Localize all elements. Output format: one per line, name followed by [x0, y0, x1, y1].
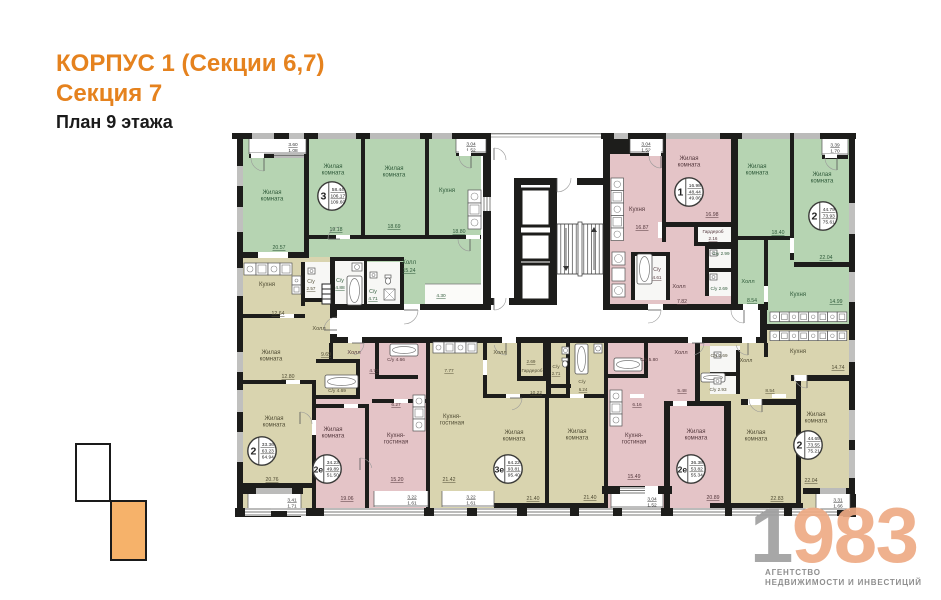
- svg-text:16.98: 16.98: [689, 183, 701, 189]
- svg-text:4.30: 4.30: [436, 293, 446, 299]
- svg-text:75.61: 75.61: [823, 220, 835, 226]
- svg-text:64.94: 64.94: [262, 455, 274, 461]
- svg-text:Кухня: Кухня: [439, 188, 455, 194]
- svg-text:49.89: 49.89: [327, 466, 339, 472]
- svg-text:48.44: 48.44: [689, 189, 701, 195]
- svg-text:С/у 2.69: С/у 2.69: [710, 286, 728, 291]
- svg-text:6.24: 6.24: [579, 387, 588, 392]
- svg-text:55.34: 55.34: [691, 473, 703, 479]
- svg-text:3.04: 3.04: [641, 142, 651, 148]
- svg-text:33.36: 33.36: [262, 442, 274, 448]
- svg-text:Холл: Холл: [347, 350, 360, 356]
- svg-text:22.04: 22.04: [805, 478, 818, 484]
- svg-text:3.41: 3.41: [287, 498, 297, 504]
- svg-text:3.04: 3.04: [466, 142, 476, 148]
- svg-text:С/у 2.69: С/у 2.69: [710, 353, 728, 358]
- svg-text:20.89: 20.89: [707, 495, 720, 501]
- svg-text:4.71: 4.71: [368, 296, 378, 302]
- svg-text:21.40: 21.40: [527, 496, 540, 502]
- svg-text:Жилаякомната: Жилаякомната: [746, 164, 769, 177]
- svg-text:18.69: 18.69: [388, 224, 401, 230]
- svg-text:2е: 2е: [314, 465, 324, 475]
- svg-text:1.61: 1.61: [466, 501, 476, 507]
- svg-text:2.16: 2.16: [709, 236, 718, 241]
- svg-text:18.40: 18.40: [772, 230, 785, 236]
- svg-text:Жилаякомната: Жилаякомната: [383, 166, 406, 179]
- svg-text:3.22: 3.22: [407, 495, 417, 501]
- svg-text:Холл: Холл: [741, 279, 754, 285]
- svg-text:Жилаякомната: Жилаякомната: [566, 429, 589, 442]
- svg-text:Жилаякомната: Жилаякомната: [322, 164, 345, 177]
- svg-text:Кухня: Кухня: [790, 292, 806, 298]
- svg-text:Холл: Холл: [674, 350, 687, 356]
- svg-text:2: 2: [811, 211, 817, 223]
- svg-text:4.61: 4.61: [653, 275, 662, 280]
- svg-text:93.81: 93.81: [508, 466, 520, 472]
- svg-text:15.49: 15.49: [628, 474, 641, 480]
- svg-text:Холл: Холл: [312, 326, 325, 332]
- svg-text:3.60: 3.60: [288, 142, 298, 148]
- svg-text:14.99: 14.99: [830, 299, 843, 305]
- svg-text:5.48: 5.48: [677, 388, 687, 394]
- svg-text:7.77: 7.77: [444, 368, 454, 374]
- svg-text:64.22: 64.22: [508, 460, 520, 466]
- svg-text:Жилаякомната: Жилаякомната: [678, 156, 701, 169]
- svg-text:1.52: 1.52: [647, 503, 657, 509]
- svg-text:19.06: 19.06: [341, 496, 354, 502]
- svg-text:Кухня-гостиная: Кухня-гостиная: [384, 433, 408, 446]
- svg-text:12.80: 12.80: [282, 374, 295, 380]
- svg-text:С/у: С/у: [336, 278, 344, 284]
- svg-text:106.17: 106.17: [330, 193, 345, 199]
- svg-text:Жилаякомната: Жилаякомната: [263, 416, 286, 429]
- svg-text:Холл: Холл: [672, 284, 685, 290]
- svg-text:10.22: 10.22: [530, 390, 542, 396]
- svg-text:3.04: 3.04: [647, 497, 657, 503]
- svg-text:73.55: 73.55: [808, 442, 820, 448]
- svg-text:63.23: 63.23: [262, 448, 274, 454]
- svg-text:18.80: 18.80: [453, 229, 466, 235]
- svg-text:58.44: 58.44: [332, 187, 344, 193]
- svg-text:2.69: 2.69: [527, 359, 536, 364]
- svg-text:21.40: 21.40: [584, 495, 597, 501]
- svg-text:Холл: Холл: [402, 260, 417, 266]
- svg-text:Жилаякомната: Жилаякомната: [260, 350, 283, 363]
- svg-text:1.70: 1.70: [830, 149, 840, 155]
- svg-text:20.76: 20.76: [266, 477, 279, 483]
- svg-text:12.64: 12.64: [272, 311, 285, 317]
- svg-text:Кухня: Кухня: [629, 207, 645, 213]
- svg-text:49.06: 49.06: [689, 196, 701, 202]
- svg-text:75.21: 75.21: [808, 449, 820, 455]
- svg-text:16.98: 16.98: [706, 212, 719, 218]
- svg-text:16.87: 16.87: [636, 225, 649, 231]
- svg-text:С/у 5.80: С/у 5.80: [640, 357, 658, 363]
- svg-text:Холл: Холл: [740, 358, 753, 364]
- svg-text:3.39: 3.39: [830, 143, 840, 149]
- svg-text:8.54: 8.54: [747, 298, 757, 304]
- svg-text:2е: 2е: [678, 465, 688, 475]
- svg-text:Кухня: Кухня: [790, 349, 806, 355]
- svg-text:Холл: Холл: [493, 350, 506, 356]
- svg-text:Гардероб: Гардероб: [521, 368, 542, 374]
- svg-text:36.38: 36.38: [691, 460, 703, 466]
- svg-text:51.50: 51.50: [327, 473, 339, 479]
- svg-text:С/у 4.66: С/у 4.66: [387, 357, 405, 363]
- svg-text:7.82: 7.82: [677, 299, 687, 305]
- svg-text:8.54: 8.54: [765, 388, 775, 394]
- svg-text:44.65: 44.65: [808, 436, 820, 442]
- svg-text:Жилаякомната: Жилаякомната: [503, 430, 526, 443]
- svg-text:Жилаякомната: Жилаякомната: [805, 412, 828, 425]
- svg-text:15.24: 15.24: [403, 268, 416, 274]
- svg-text:Жилаякомната: Жилаякомната: [322, 427, 345, 440]
- svg-text:Кухня: Кухня: [259, 282, 275, 288]
- svg-text:С/у 4.69: С/у 4.69: [328, 388, 346, 394]
- svg-text:Жилаякомната: Жилаякомната: [745, 430, 768, 443]
- svg-text:1: 1: [677, 187, 683, 199]
- svg-text:22.04: 22.04: [820, 255, 833, 261]
- svg-text:3: 3: [320, 191, 326, 203]
- svg-text:Жилаякомната: Жилаякомната: [685, 429, 708, 442]
- svg-text:С/у: С/у: [578, 379, 586, 385]
- svg-text:С/у: С/у: [369, 289, 377, 295]
- svg-text:6.16: 6.16: [632, 402, 642, 408]
- svg-text:6.27: 6.27: [391, 402, 401, 408]
- svg-text:2.57: 2.57: [307, 286, 316, 291]
- svg-text:2: 2: [250, 446, 256, 458]
- svg-text:Жилаякомната: Жилаякомната: [261, 190, 284, 203]
- svg-text:С/у 2.99: С/у 2.99: [712, 251, 730, 256]
- svg-text:21.42: 21.42: [443, 477, 456, 483]
- svg-text:15.20: 15.20: [391, 477, 404, 483]
- svg-text:2.71: 2.71: [552, 371, 561, 376]
- svg-text:2: 2: [796, 440, 802, 452]
- svg-text:Кухня-гостиная: Кухня-гостиная: [440, 414, 464, 427]
- svg-text:95.40: 95.40: [508, 473, 520, 479]
- svg-text:4.88: 4.88: [335, 285, 345, 291]
- svg-text:С/у: С/у: [307, 279, 315, 285]
- svg-text:34.23: 34.23: [327, 460, 339, 466]
- svg-text:14.74: 14.74: [832, 365, 845, 371]
- svg-text:Жилаякомната: Жилаякомната: [811, 172, 834, 185]
- svg-text:4.72: 4.72: [369, 368, 379, 374]
- svg-text:Гардероб: Гардероб: [702, 229, 723, 235]
- svg-text:3е: 3е: [495, 465, 505, 475]
- svg-text:109.60: 109.60: [330, 200, 345, 206]
- svg-text:53.82: 53.82: [691, 466, 703, 472]
- svg-text:С/у: С/у: [653, 267, 661, 273]
- svg-text:44.79: 44.79: [823, 207, 835, 213]
- svg-text:Кухня-гостиная: Кухня-гостиная: [622, 433, 646, 446]
- svg-text:С/у: С/у: [552, 364, 560, 370]
- svg-text:73.93: 73.93: [823, 213, 835, 219]
- svg-text:19.18: 19.18: [330, 227, 343, 233]
- svg-text:1.61: 1.61: [407, 501, 417, 507]
- svg-text:20.57: 20.57: [273, 245, 286, 251]
- svg-text:3.22: 3.22: [466, 495, 476, 501]
- svg-text:С/у 2.93: С/у 2.93: [709, 387, 727, 392]
- svg-text:9.69: 9.69: [321, 352, 331, 358]
